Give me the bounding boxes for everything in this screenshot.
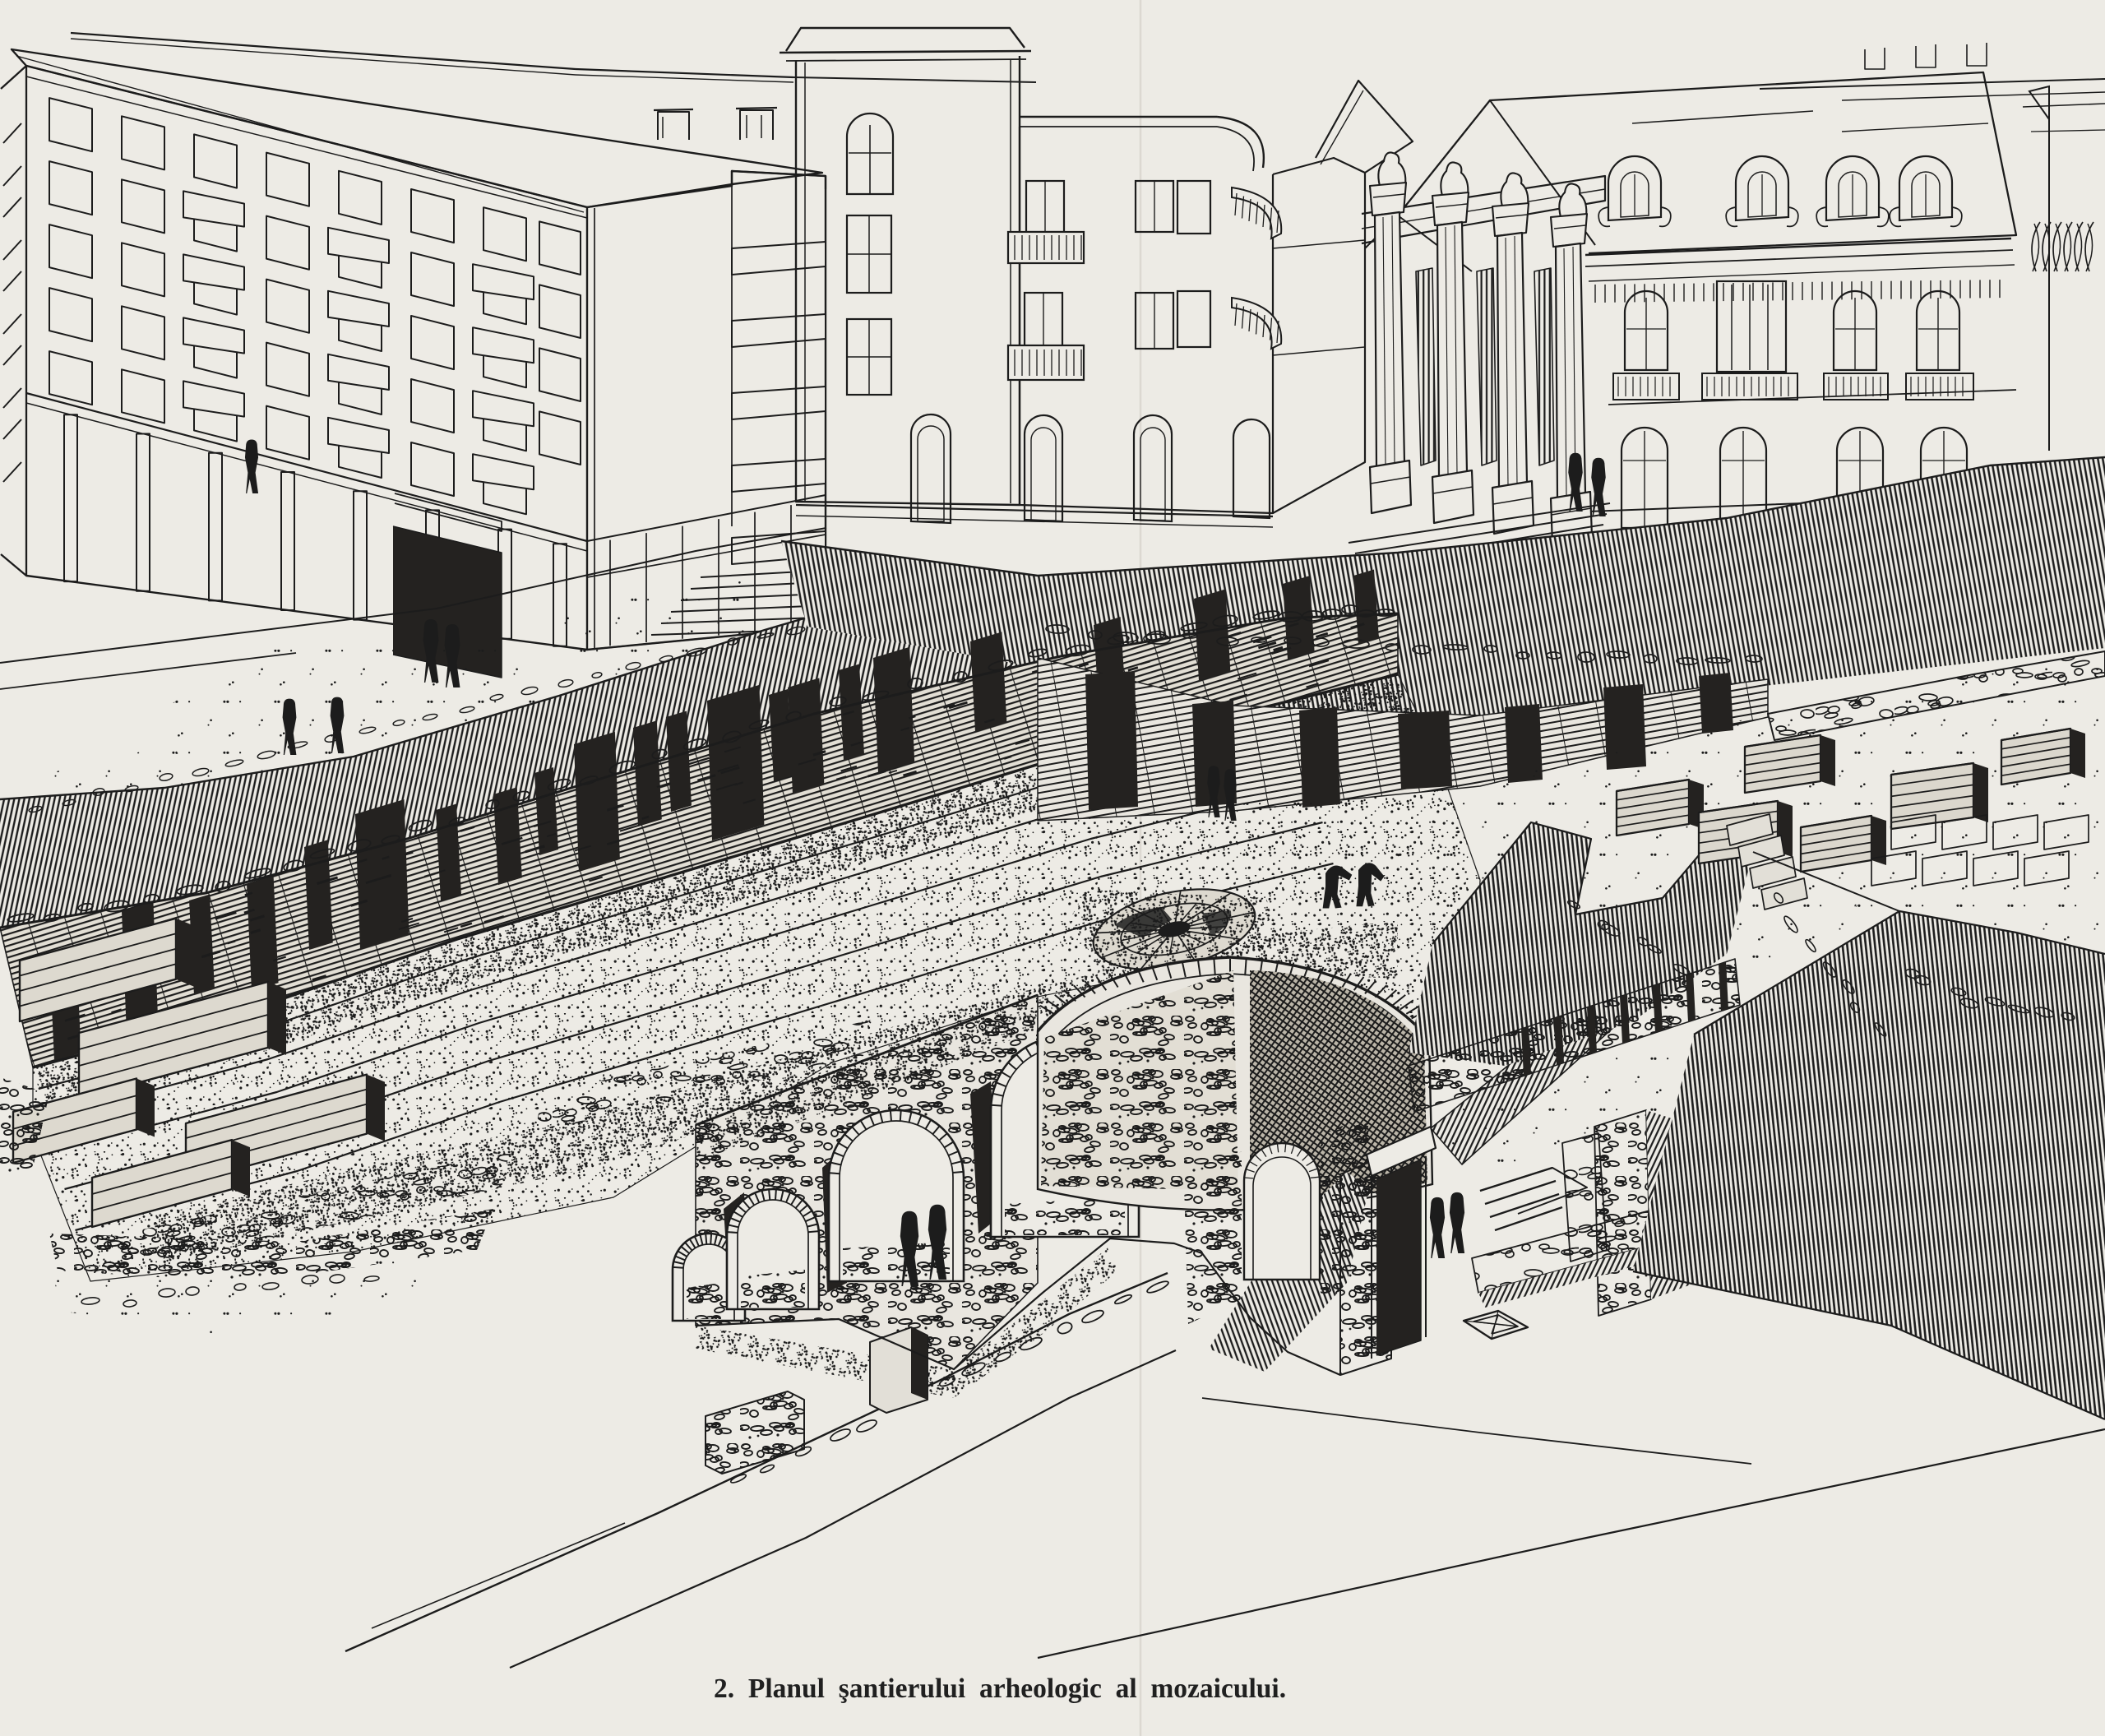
svg-text:2. Planul şantierului arheo: 2. Planul şantierului arheologic al moza…	[714, 1674, 1286, 1704]
